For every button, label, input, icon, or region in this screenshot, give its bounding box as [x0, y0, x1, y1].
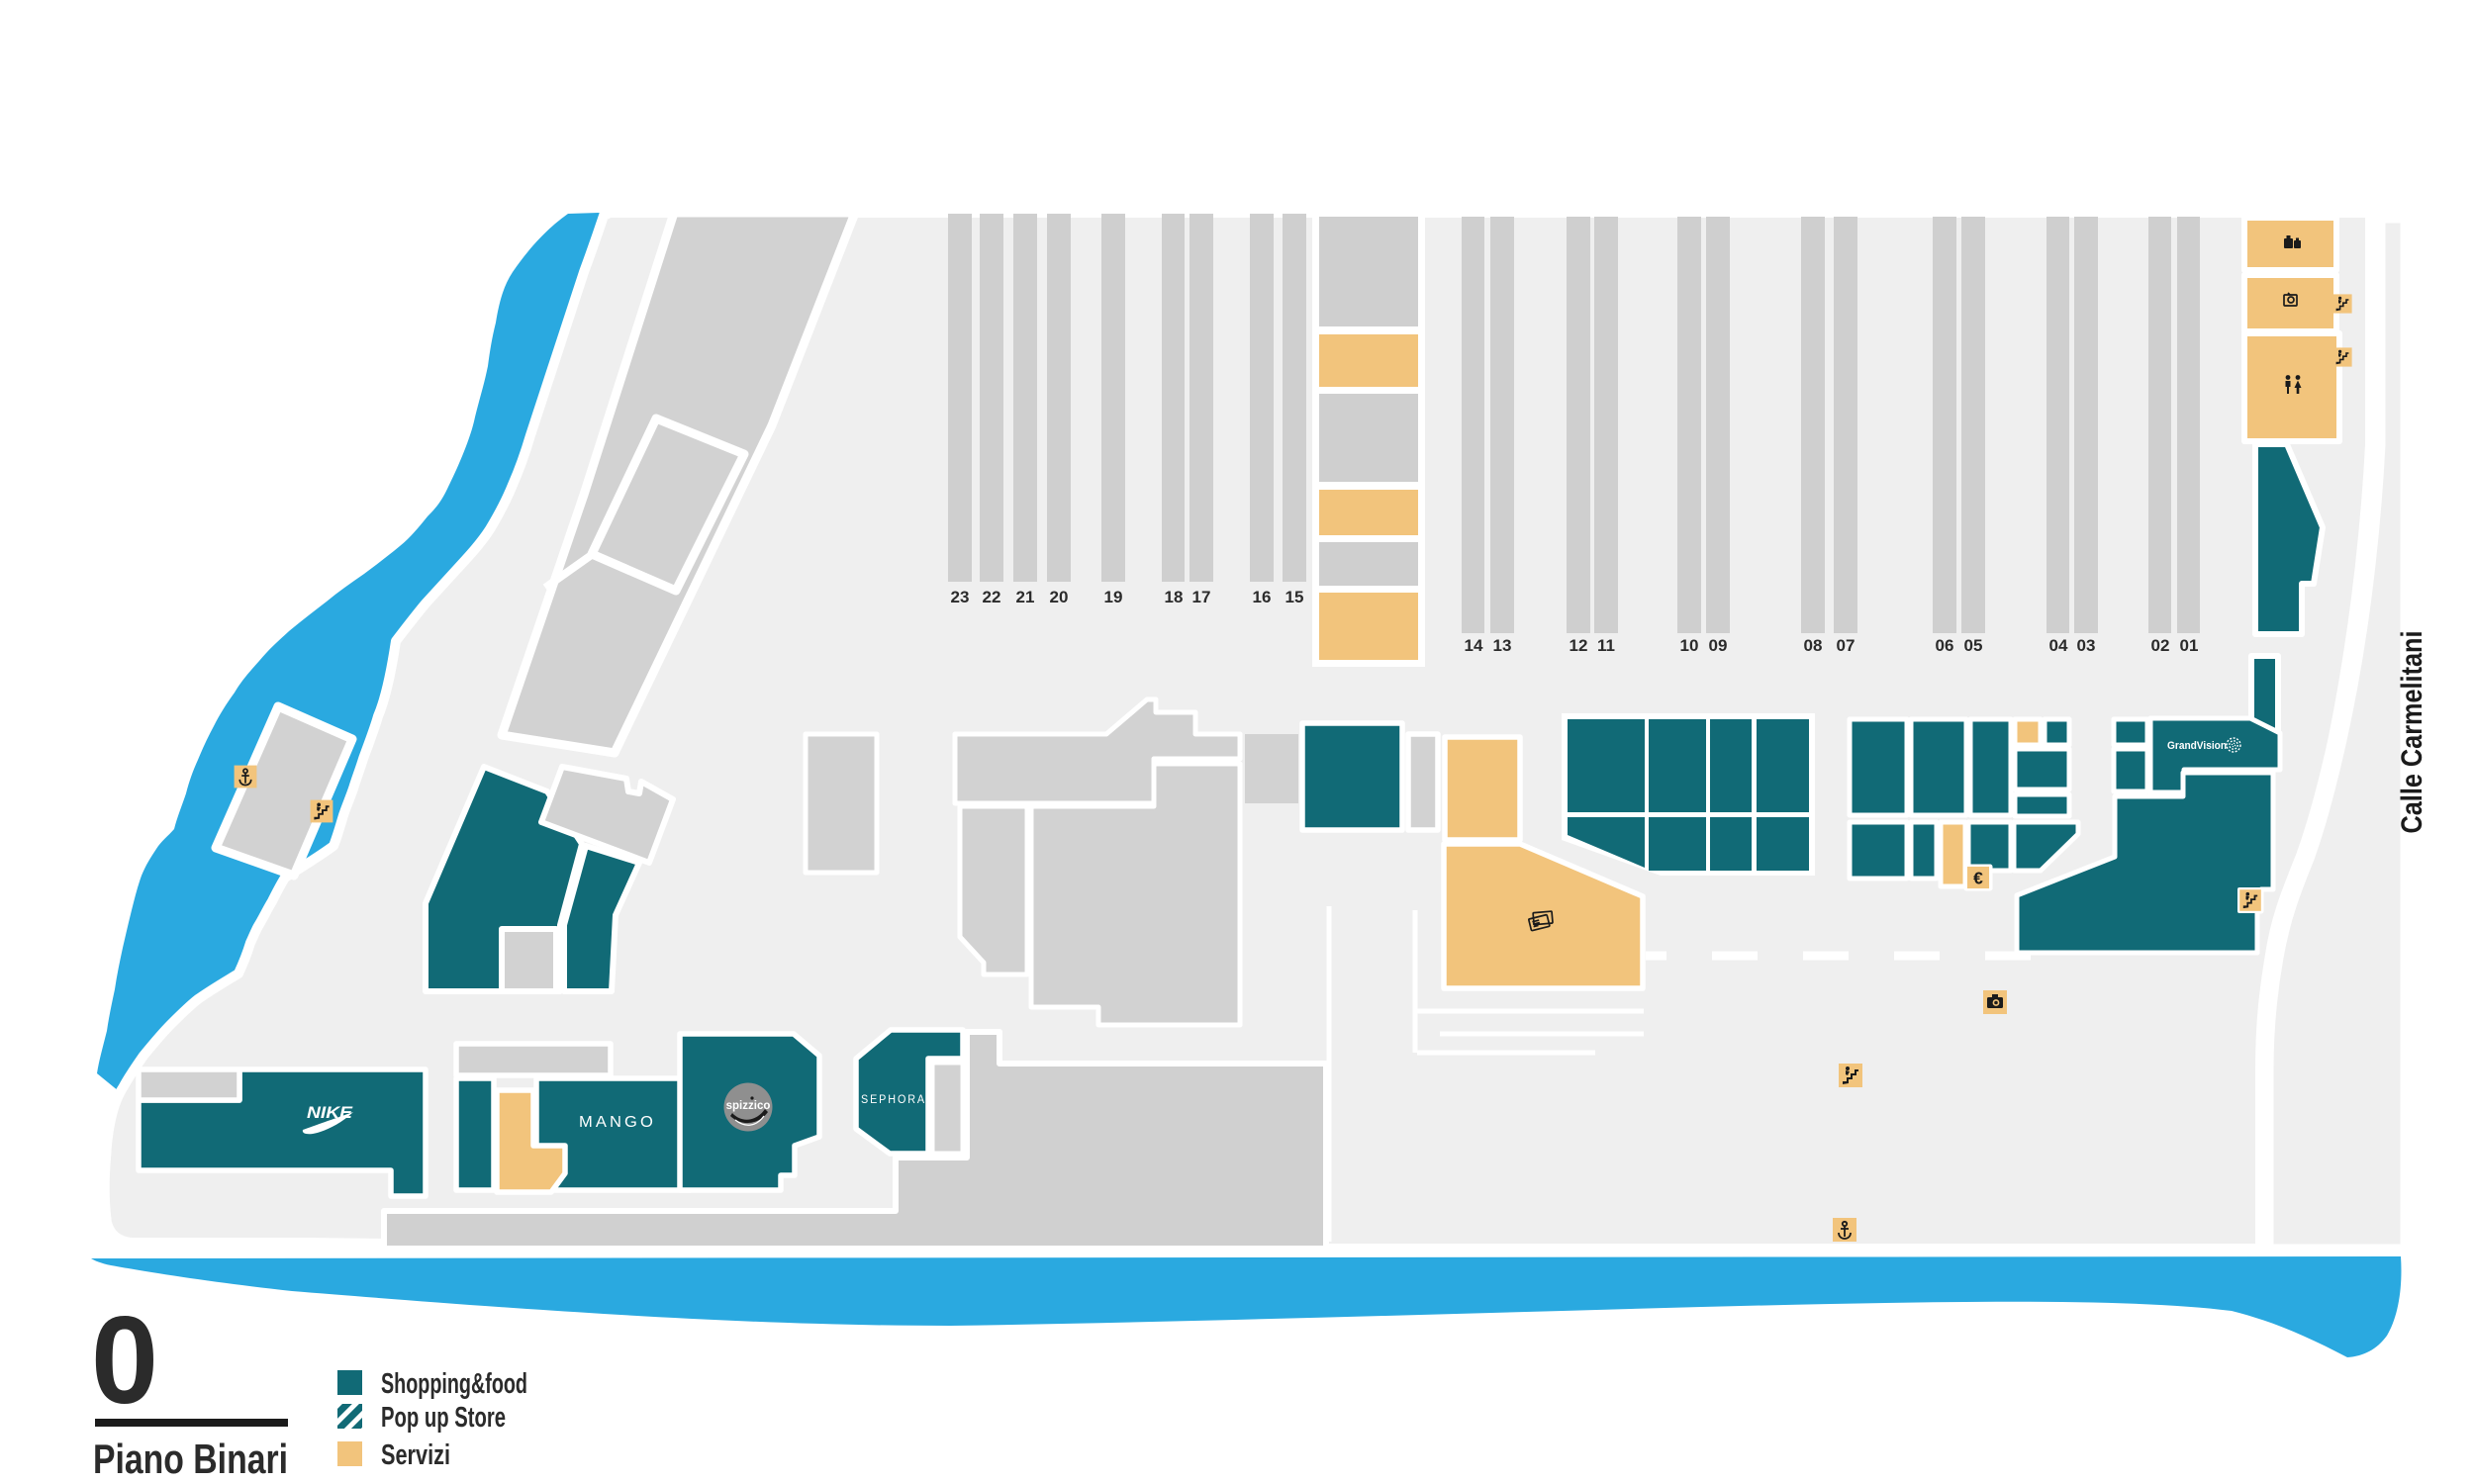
svg-text:07: 07 — [1837, 636, 1855, 655]
svg-text:12: 12 — [1570, 636, 1588, 655]
svg-text:Shopping&food: Shopping&food — [381, 1368, 527, 1400]
svg-text:06: 06 — [1936, 636, 1954, 655]
svg-text:08: 08 — [1804, 636, 1823, 655]
svg-text:18: 18 — [1165, 588, 1184, 606]
svg-text:09: 09 — [1709, 636, 1728, 655]
svg-text:02: 02 — [2151, 636, 2170, 655]
svg-text:13: 13 — [1493, 636, 1512, 655]
svg-text:spizzico: spizzico — [726, 1100, 771, 1112]
svg-text:19: 19 — [1104, 588, 1123, 606]
svg-text:04: 04 — [2049, 636, 2068, 655]
svg-text:0: 0 — [91, 1292, 158, 1430]
svg-text:21: 21 — [1016, 588, 1035, 606]
svg-text:11: 11 — [1597, 636, 1615, 655]
svg-text:05: 05 — [1964, 636, 1983, 655]
svg-text:22: 22 — [983, 588, 1001, 606]
svg-text:Servizi: Servizi — [381, 1439, 450, 1471]
svg-text:14: 14 — [1465, 636, 1483, 655]
svg-text:NIKE: NIKE — [307, 1103, 353, 1122]
svg-text:15: 15 — [1285, 588, 1304, 606]
svg-text:Piano Binari: Piano Binari — [93, 1436, 288, 1482]
svg-text:20: 20 — [1050, 588, 1069, 606]
svg-text:GrandVision: GrandVision — [2167, 740, 2227, 752]
svg-text:MANGO: MANGO — [579, 1114, 656, 1131]
svg-text:23: 23 — [951, 588, 970, 606]
svg-text:SEPHORA: SEPHORA — [861, 1094, 926, 1106]
svg-text:10: 10 — [1680, 636, 1699, 655]
svg-text:16: 16 — [1253, 588, 1272, 606]
svg-text:Pop up Store: Pop up Store — [381, 1402, 506, 1434]
svg-text:17: 17 — [1192, 588, 1211, 606]
svg-text:Calle Carmelitani: Calle Carmelitani — [2396, 631, 2428, 834]
svg-text:03: 03 — [2077, 636, 2096, 655]
svg-text:01: 01 — [2180, 636, 2199, 655]
